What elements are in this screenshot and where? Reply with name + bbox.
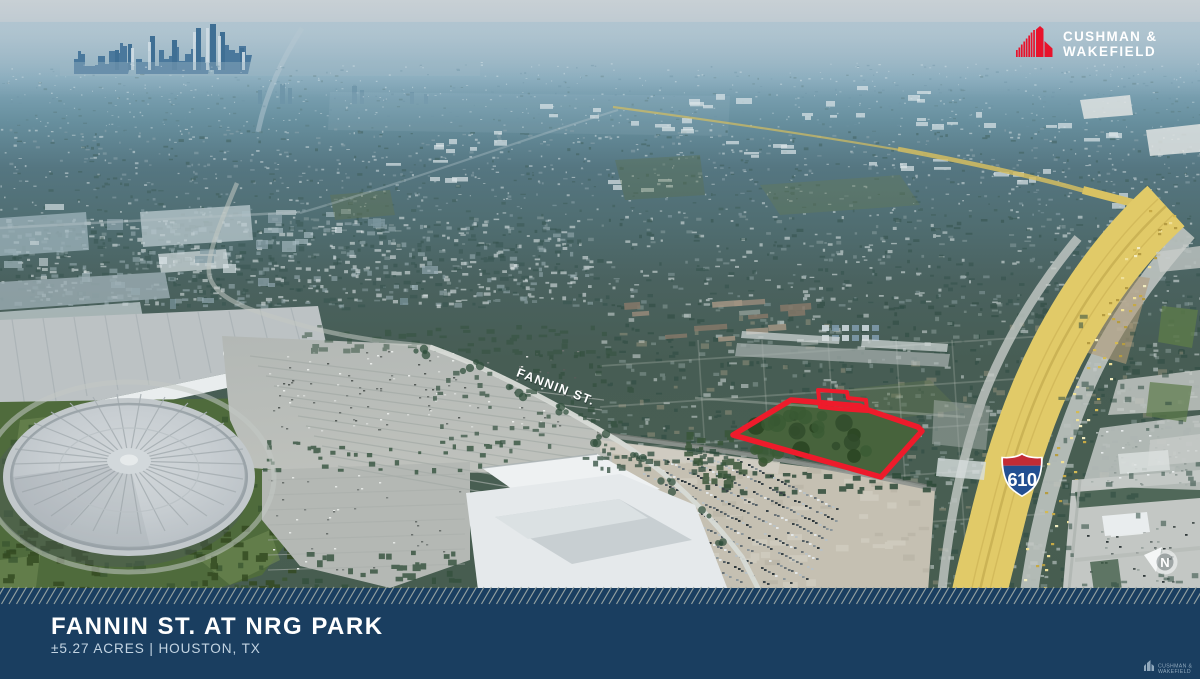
svg-text:FANNIN ST. AT NRG PARK: FANNIN ST. AT NRG PARK <box>51 613 384 640</box>
svg-text:WAKEFIELD: WAKEFIELD <box>1063 44 1156 59</box>
svg-text:610: 610 <box>1007 469 1037 490</box>
svg-text:±5.27 ACRES | HOUSTON, TX: ±5.27 ACRES | HOUSTON, TX <box>51 641 261 656</box>
svg-text:CUSHMAN &: CUSHMAN & <box>1063 29 1157 44</box>
svg-text:WAKEFIELD: WAKEFIELD <box>1158 669 1191 675</box>
svg-text:N: N <box>1160 555 1169 570</box>
